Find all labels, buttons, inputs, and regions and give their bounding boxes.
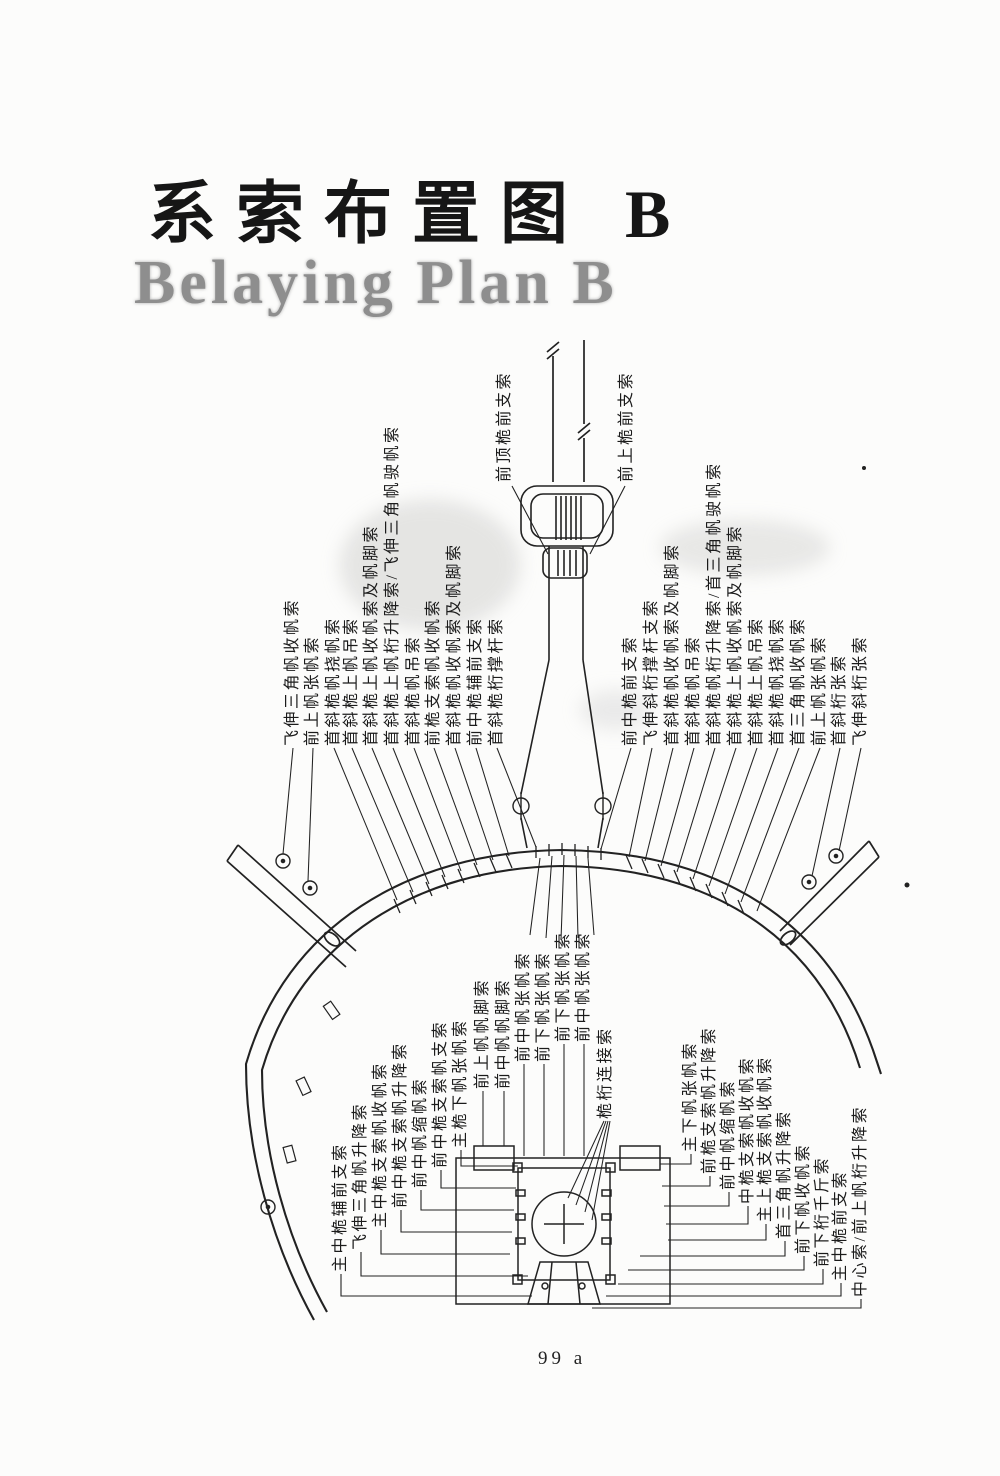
rigging-label-right-group-4: 首斜桅帆吊索 [684,635,704,746]
stay-block-right [595,792,611,820]
rigging-label-lower-right-group-4: 中桅支索帆收帆索 [738,1056,758,1204]
rigging-label-lower-left-group-6: 前中桅支索帆支索 [431,1020,451,1168]
rigging-label-mid-group-3: 前中帆张帆索 [514,951,534,1062]
rigging-label-lower-right-group-9: 主中桅前支索 [831,1170,851,1281]
page-number: 99 a [538,1348,586,1370]
rigging-label-lower-right-group-2: 前桅支索帆升降索 [700,1026,720,1174]
rigging-label-left-group-5: 首斜桅上帆收帆索及帆脚索 [362,524,382,746]
rigging-label-mid-group-4: 前下帆张帆索 [534,951,554,1062]
rigging-label-lower-right-group-1: 主下帆张帆索 [681,1041,701,1152]
rigging-label-left-group-3: 首斜桅帆挠帆索 [324,616,344,746]
rigging-label-right-group-6: 首斜桅上帆收帆索及帆脚索 [726,524,746,746]
rigging-label-right-group-12: 飞伸斜桁张索 [851,635,871,746]
rigging-label-bowsprit-labels-1: 前顶桅前支索 [495,371,515,482]
rigging-label-lower-left-group-3: 主中桅支索帆收帆索 [371,1061,391,1228]
rigging-label-lower-right-group-6: 首三角帆升降索 [775,1109,795,1239]
rigging-label-lower-right-group-7: 前下帆收帆索 [794,1143,814,1254]
rigging-label-left-group-9: 首斜桅帆收帆索及帆脚索 [445,542,465,746]
rigging-label-right-group-2: 飞伸斜桁撑杆支索 [642,598,662,746]
rigging-label-lower-left-group-2: 飞伸三角帆升降索 [351,1102,371,1250]
rigging-label-lower-left-group-1: 主中桅辅前支索 [331,1142,351,1272]
rigging-label-right-group-5: 首斜桅帆桁升降索/首三角帆驶帆索 [705,462,725,746]
scan-dot [905,883,910,888]
rigging-label-bowsprit-labels-2: 前上桅前支索 [617,371,637,482]
rigging-label-mid-group-5: 前下帆张帆索 [554,931,574,1042]
rigging-label-left-group-1: 飞伸三角帆收帆索 [283,598,303,746]
rigging-label-left-group-7: 首斜桅帆吊索 [404,635,424,746]
rigging-label-left-group-10: 前中桅辅前支索 [466,616,486,746]
rigging-label-lower-right-group-10: 中心索/前上帆桁升降索 [851,1105,871,1297]
stay-block-left [513,792,529,820]
bowsprit-lower [521,546,603,848]
rigging-label-left-group-4: 首斜桅上帆吊索 [342,616,362,746]
deck-structure [456,1146,670,1304]
rigging-label-mid-group-7: 桅桁连接索 [596,1026,616,1119]
rigging-label-right-group-1: 前中桅前支索 [621,635,641,746]
rigging-label-right-group-3: 首斜桅帆收帆索及帆脚索 [663,542,683,746]
rigging-label-lower-left-group-5: 前中帆缩帆索 [411,1077,431,1188]
rigging-label-right-group-10: 前上帆张帆索 [810,635,830,746]
rigging-label-right-group-11: 首斜桁张索 [830,653,850,746]
rigging-label-right-group-9: 首三角帆收帆索 [789,616,809,746]
rigging-label-mid-group-6: 前中帆张帆索 [574,931,594,1042]
rigging-label-left-group-2: 前上帆张帆索 [303,635,323,746]
left-leader-fan [283,748,536,900]
rigging-label-right-group-7: 首斜桅上帆吊索 [747,616,767,746]
bowsprit-spar [547,340,590,482]
scan-dot [862,466,866,470]
scanned-page: 系索布置图 B Belaying Plan B [0,0,1000,1476]
pin-rail-ticks [394,843,744,914]
gammoning-block [521,486,613,578]
arc-fittings [283,1001,340,1163]
rigging-label-right-group-8: 首斜桅帆挠帆索 [768,616,788,746]
rigging-label-left-group-6: 首斜桅上帆桁升降索/飞伸三角帆驶帆索 [383,425,403,746]
rigging-label-mid-group-2: 前中帆帆脚索 [494,978,514,1089]
rigging-label-left-group-8: 前桅支索帆收帆索 [424,598,444,746]
rigging-label-lower-right-group-5: 主上桅支索帆收帆索 [756,1055,776,1222]
rigging-label-mid-group-1: 前上帆帆脚索 [473,978,493,1089]
bowsprit-heel [528,1262,600,1304]
rigging-label-left-group-11: 首斜桅桁撑杆索 [487,616,507,746]
rigging-label-lower-left-group-4: 前中桅支索帆升降索 [391,1041,411,1208]
rigging-label-lower-right-group-8: 前下桁千斤索 [813,1156,833,1267]
rigging-label-lower-right-group-3: 前中帆缩帆索 [719,1079,739,1190]
rigging-label-lower-left-group-7: 主桅下帆张帆索 [451,1018,471,1148]
